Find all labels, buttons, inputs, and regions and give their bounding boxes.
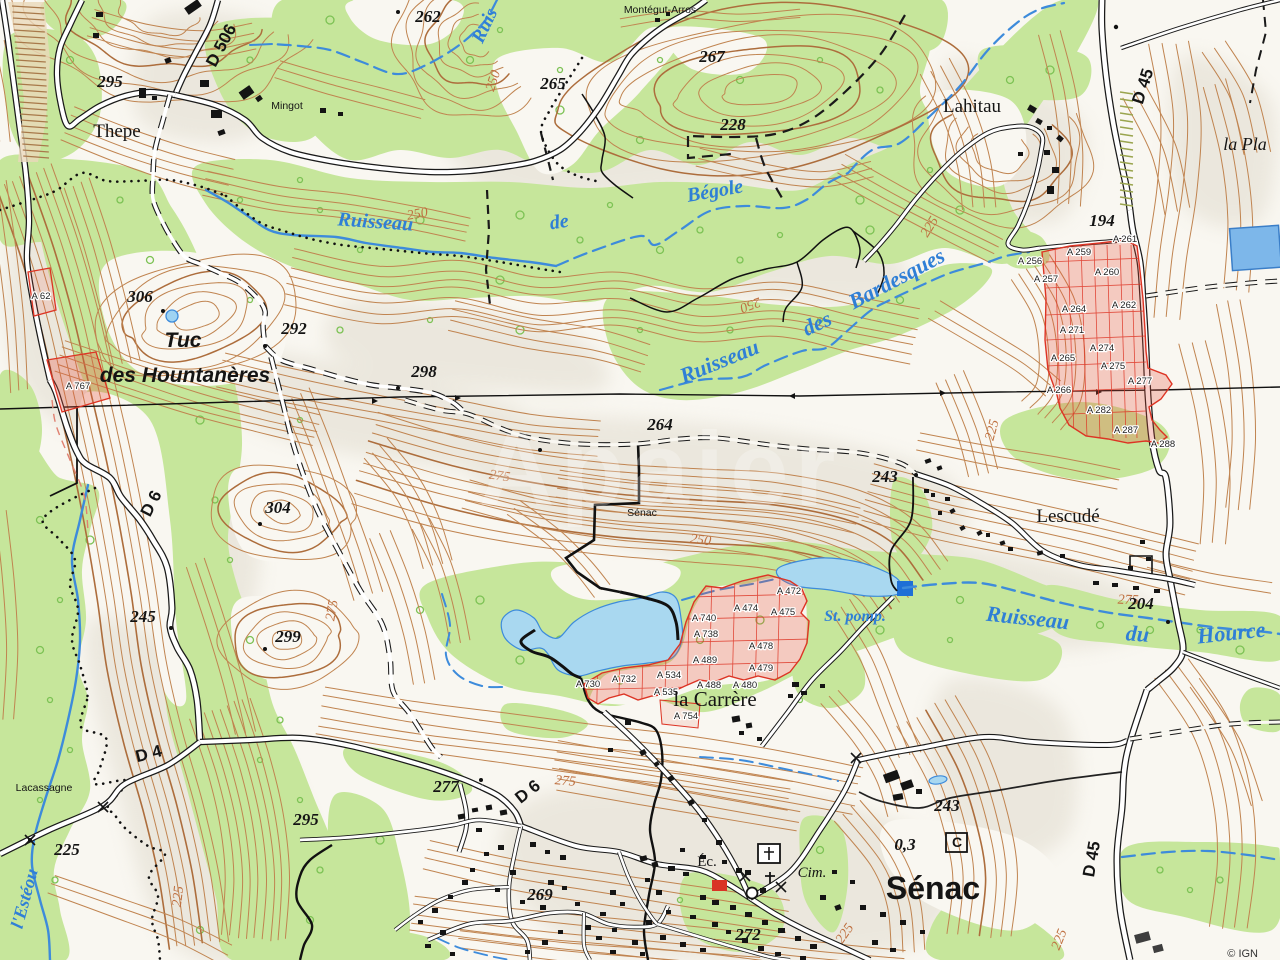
svg-text:A 475: A 475 bbox=[771, 607, 795, 618]
svg-text:A 478: A 478 bbox=[749, 641, 773, 652]
svg-text:A 266: A 266 bbox=[1047, 385, 1071, 396]
svg-text:292: 292 bbox=[280, 319, 307, 338]
svg-text:245: 245 bbox=[129, 607, 156, 626]
svg-text:275: 275 bbox=[554, 773, 576, 790]
svg-text:de: de bbox=[548, 210, 570, 234]
svg-text:304: 304 bbox=[264, 498, 291, 517]
svg-text:225: 225 bbox=[53, 840, 80, 859]
svg-text:Lacassagne: Lacassagne bbox=[16, 782, 73, 794]
svg-text:250: 250 bbox=[689, 532, 712, 550]
svg-text:Lescudé: Lescudé bbox=[1036, 506, 1099, 527]
svg-text:A 754: A 754 bbox=[674, 711, 698, 722]
svg-text:la Pla: la Pla bbox=[1223, 134, 1267, 154]
svg-text:A 767: A 767 bbox=[66, 381, 90, 392]
svg-text:A 474: A 474 bbox=[734, 603, 758, 614]
svg-text:du: du bbox=[1125, 620, 1150, 647]
svg-text:A 740: A 740 bbox=[692, 613, 716, 624]
svg-text:A 256: A 256 bbox=[1018, 256, 1042, 267]
svg-text:Montégut-Arros: Montégut-Arros bbox=[624, 4, 696, 16]
svg-text:Thepe: Thepe bbox=[93, 121, 140, 142]
svg-text:A 479: A 479 bbox=[749, 663, 773, 674]
svg-text:A 732: A 732 bbox=[612, 674, 636, 685]
svg-text:194: 194 bbox=[1089, 211, 1115, 230]
svg-text:A 260: A 260 bbox=[1095, 267, 1119, 278]
svg-text:Cim.: Cim. bbox=[798, 865, 827, 881]
svg-text:A 62: A 62 bbox=[31, 291, 50, 302]
svg-text:228: 228 bbox=[719, 115, 746, 134]
svg-text:299: 299 bbox=[274, 627, 301, 646]
svg-text:A 472: A 472 bbox=[777, 586, 801, 597]
svg-text:C: C bbox=[952, 834, 962, 850]
svg-text:243: 243 bbox=[933, 796, 960, 815]
svg-text:269: 269 bbox=[526, 885, 553, 904]
svg-text:A 287: A 287 bbox=[1114, 425, 1138, 436]
svg-text:Tuc: Tuc bbox=[165, 329, 202, 352]
svg-text:A 264: A 264 bbox=[1062, 304, 1086, 315]
svg-text:225: 225 bbox=[170, 885, 187, 908]
svg-text:267: 267 bbox=[698, 47, 726, 66]
svg-text:A 282: A 282 bbox=[1087, 405, 1111, 416]
svg-text:la Carrère: la Carrère bbox=[673, 687, 756, 711]
svg-text:295: 295 bbox=[292, 810, 319, 829]
svg-text:272: 272 bbox=[734, 925, 761, 944]
svg-text:des Hountanères: des Hountanères bbox=[100, 364, 270, 387]
svg-text:A 277: A 277 bbox=[1128, 376, 1152, 387]
svg-text:A 489: A 489 bbox=[693, 655, 717, 666]
svg-text:Éc.: Éc. bbox=[697, 853, 717, 870]
svg-text:277: 277 bbox=[432, 777, 460, 796]
svg-text:A 265: A 265 bbox=[1051, 353, 1075, 364]
svg-text:A 271: A 271 bbox=[1060, 325, 1084, 336]
svg-text:Lahitau: Lahitau bbox=[943, 96, 1002, 117]
svg-text:306: 306 bbox=[126, 287, 153, 306]
svg-text:© IGN: © IGN bbox=[1227, 948, 1258, 960]
svg-text:265: 265 bbox=[539, 74, 566, 93]
svg-text:Sénac: Sénac bbox=[886, 870, 980, 906]
svg-text:St. pomp.: St. pomp. bbox=[824, 608, 886, 625]
svg-text:204: 204 bbox=[1127, 594, 1154, 613]
svg-text:A 288: A 288 bbox=[1151, 439, 1175, 450]
svg-text:298: 298 bbox=[410, 362, 437, 381]
svg-text:A 738: A 738 bbox=[694, 629, 718, 640]
svg-text:A 257: A 257 bbox=[1034, 274, 1058, 285]
svg-text:A 275: A 275 bbox=[1101, 361, 1125, 372]
svg-text:Mingot: Mingot bbox=[271, 100, 303, 112]
svg-text:262: 262 bbox=[414, 7, 441, 26]
svg-text:Apaier: Apaier bbox=[479, 411, 842, 528]
svg-text:243: 243 bbox=[871, 467, 898, 486]
svg-text:A 274: A 274 bbox=[1090, 343, 1114, 354]
svg-text:295: 295 bbox=[96, 72, 123, 91]
svg-text:0,3: 0,3 bbox=[894, 835, 916, 854]
svg-text:A 259: A 259 bbox=[1067, 247, 1091, 258]
svg-text:A 261: A 261 bbox=[1113, 234, 1137, 245]
svg-text:A 262: A 262 bbox=[1112, 300, 1136, 311]
svg-text:A 534: A 534 bbox=[657, 670, 681, 681]
svg-text:A 730: A 730 bbox=[576, 679, 600, 690]
